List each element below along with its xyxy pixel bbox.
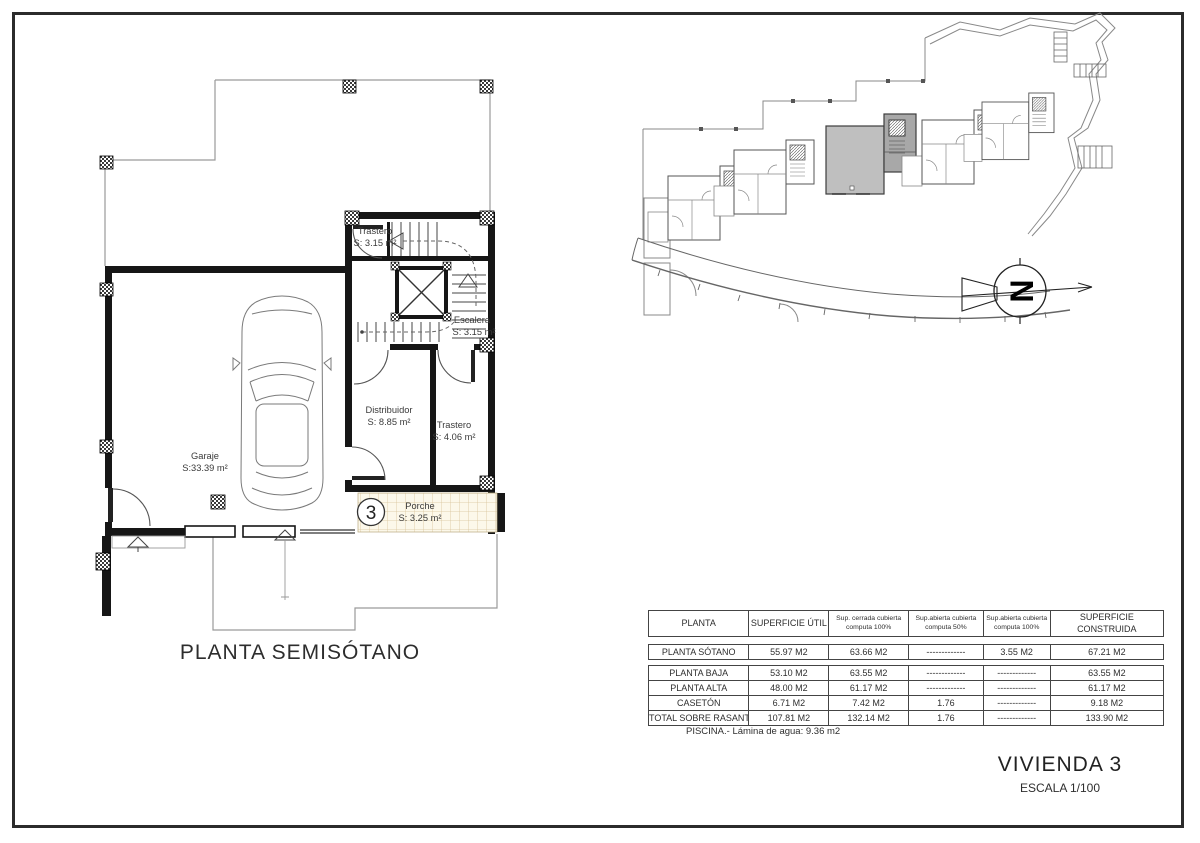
north-compass: N [962, 258, 1092, 324]
column-header: SUPERFICIE ÚTIL [749, 611, 829, 637]
title-block: VIVIENDA 3 ESCALA 1/100 [975, 753, 1145, 795]
column-header: Sup.abierta cubierta computa 50% [909, 611, 984, 637]
room-area: S: 3.15 m² [453, 327, 496, 337]
table-cell: ------------- [909, 681, 984, 696]
surface-areas-table: PLANTA SUPERFICIE ÚTIL Sup. cerrada cubi… [648, 610, 1164, 726]
table-row: PLANTA ALTA48.00 M2 61.17 M2------------… [649, 681, 1164, 696]
table-cell: 7.42 M2 [829, 696, 909, 711]
table-cell: 3.55 M2 [983, 645, 1050, 660]
column-header: PLANTA [649, 611, 749, 637]
room-area: S: 4.06 m² [433, 432, 476, 442]
site-plan-drawing: N [630, 8, 1190, 338]
plan-title: PLANTA SEMISÓTANO [130, 641, 470, 665]
drawing-sheet: Trastero S: 3.15 m² Escalera S: 3.15 m² … [0, 0, 1200, 843]
table-cell: 63.55 M2 [829, 666, 909, 681]
site-stairs [1054, 32, 1112, 168]
table-row: CASETÓN6.71 M2 7.42 M21.76 -------------… [649, 696, 1164, 711]
room-area: S:33.39 m² [182, 463, 227, 473]
table-cell: PLANTA BAJA [649, 666, 749, 681]
table-gap [648, 637, 1164, 644]
table-row: PLANTA SÓTANO55.97 M2 63.66 M2----------… [649, 645, 1164, 660]
header-text: SUPERFICIE CONSTRUIDA [1051, 612, 1163, 635]
table-row: TOTAL SOBRE RASANTE107.81 M2 132.14 M21.… [649, 711, 1164, 726]
table-cell: CASETÓN [649, 696, 749, 711]
room-area: S: 8.85 m² [368, 417, 411, 427]
unit-number: 3 [366, 503, 377, 524]
table-cell: 132.14 M2 [829, 711, 909, 726]
table-row: PLANTA BAJA53.10 M2 63.55 M2------------… [649, 666, 1164, 681]
table-cell: TOTAL SOBRE RASANTE [649, 711, 749, 726]
room-name: Trastero [358, 226, 392, 236]
garage-door [112, 526, 355, 600]
room-area: S: 3.15 m² [354, 238, 397, 248]
unit-number-badge: 3 [358, 499, 385, 526]
header-text: Sup. cerrada cubierta computa 100% [829, 615, 908, 632]
table-header-row: PLANTA SUPERFICIE ÚTIL Sup. cerrada cubi… [649, 611, 1164, 637]
pool-note: PISCINA.- Lámina de agua: 9.36 m2 [686, 726, 840, 737]
table-cell: ------------- [983, 696, 1050, 711]
table-cell: 107.81 M2 [749, 711, 829, 726]
room-name: Distribuidor [365, 405, 412, 415]
table-cell: ------------- [983, 666, 1050, 681]
header-text: Sup.abierta cubierta computa 100% [984, 615, 1050, 632]
areas-table-body: PLANTA BAJA53.10 M2 63.55 M2------------… [648, 665, 1164, 726]
table-cell: ------------- [983, 681, 1050, 696]
table-cell: 67.21 M2 [1050, 645, 1163, 660]
table-cell: 133.90 M2 [1050, 711, 1163, 726]
table-cell: 1.76 [909, 711, 984, 726]
header-text: SUPERFICIE ÚTIL [749, 618, 828, 629]
table-cell: ------------- [909, 666, 984, 681]
room-label-trastero-low: Trastero S: 4.06 m² [433, 420, 476, 442]
room-name: Escalera [454, 315, 491, 325]
room-label-distribuidor: Distribuidor S: 8.85 m² [365, 405, 412, 427]
room-name: Porche [405, 501, 434, 511]
table-cell: 1.76 [909, 696, 984, 711]
room-label-garaje: Garaje S:33.39 m² [182, 451, 227, 473]
header-text: Sup.abierta cubierta computa 50% [909, 615, 983, 632]
project-title: VIVIENDA 3 [975, 753, 1145, 777]
table-cell: 55.97 M2 [749, 645, 829, 660]
room-label-trastero-top: Trastero S: 3.15 m² [354, 226, 397, 248]
table-cell: 53.10 M2 [749, 666, 829, 681]
header-text: PLANTA [649, 618, 748, 629]
areas-table-sotano: PLANTA SÓTANO55.97 M2 63.66 M2----------… [648, 644, 1164, 660]
table-cell: PLANTA ALTA [649, 681, 749, 696]
room-name: Trastero [437, 420, 471, 430]
table-cell: 6.71 M2 [749, 696, 829, 711]
floor-plan-drawing: Trastero S: 3.15 m² Escalera S: 3.15 m² … [90, 70, 550, 640]
table-cell: 61.17 M2 [1050, 681, 1163, 696]
north-letter: N [1004, 279, 1040, 302]
table-cell: 61.17 M2 [829, 681, 909, 696]
room-area: S: 3.25 m² [399, 513, 442, 523]
areas-table-header: PLANTA SUPERFICIE ÚTIL Sup. cerrada cubi… [648, 610, 1164, 637]
scale-label: ESCALA 1/100 [975, 781, 1145, 795]
table-cell: ------------- [983, 711, 1050, 726]
column-header: SUPERFICIE CONSTRUIDA [1050, 611, 1163, 637]
table-cell: 63.66 M2 [829, 645, 909, 660]
site-units [648, 93, 1054, 242]
table-cell: 48.00 M2 [749, 681, 829, 696]
column-header: Sup. cerrada cubierta computa 100% [829, 611, 909, 637]
room-name: Garaje [191, 451, 219, 461]
elevator-shaft [391, 262, 451, 321]
table-cell: ------------- [909, 645, 984, 660]
car-top-view [233, 296, 331, 510]
table-cell: 9.18 M2 [1050, 696, 1163, 711]
column-header: Sup.abierta cubierta computa 100% [983, 611, 1050, 637]
table-cell: 63.55 M2 [1050, 666, 1163, 681]
table-cell: PLANTA SÓTANO [649, 645, 749, 660]
